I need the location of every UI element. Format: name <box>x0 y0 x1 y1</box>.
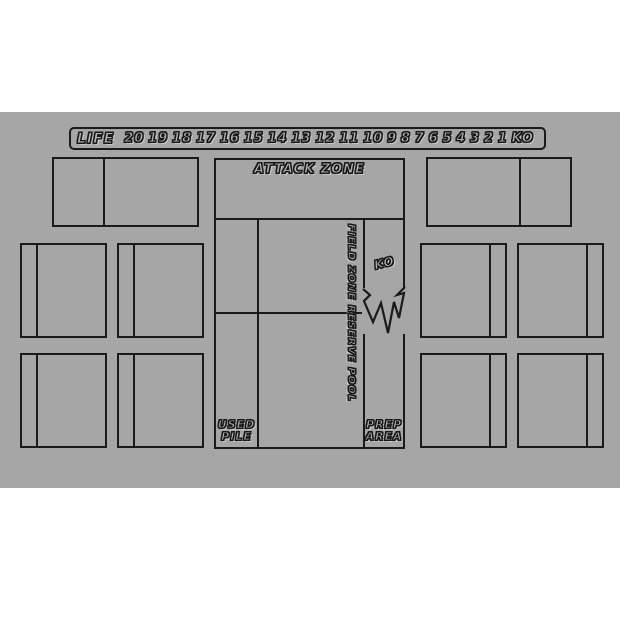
card-zone-right-4 <box>517 353 604 448</box>
playmat-surface: LIFE 2019181716151413121110987654321KO <box>0 112 620 488</box>
zone-divider <box>489 355 491 446</box>
ko-label: KO <box>372 254 396 273</box>
life-value: 4 <box>456 132 466 145</box>
life-value: 1 <box>498 132 508 145</box>
life-value: 18 <box>172 132 192 145</box>
life-value: 16 <box>220 132 240 145</box>
zone-divider <box>133 245 135 336</box>
life-value: 6 <box>429 132 439 145</box>
card-zone-top-left <box>52 157 199 227</box>
life-value: 15 <box>244 132 264 145</box>
life-value: 20 <box>124 132 144 145</box>
card-zone-left-4 <box>117 353 204 448</box>
life-value: 17 <box>196 132 216 145</box>
burst-crack-icon <box>357 285 406 337</box>
life-value: 12 <box>315 132 335 145</box>
zone-divider <box>36 245 38 336</box>
life-values: 2019181716151413121110987654321KO <box>124 132 534 145</box>
card-zone-left-2 <box>117 243 204 338</box>
life-counter-track: LIFE 2019181716151413121110987654321KO <box>69 127 546 150</box>
zone-divider <box>586 245 588 336</box>
playmat-image: LIFE 2019181716151413121110987654321KO <box>0 0 620 620</box>
life-value: 19 <box>148 132 168 145</box>
zone-divider <box>103 159 105 225</box>
card-zone-right-2 <box>517 243 604 338</box>
ko-zone: KO <box>365 252 403 274</box>
life-value: 14 <box>268 132 288 145</box>
card-zone-right-1 <box>420 243 507 338</box>
zone-divider <box>133 355 135 446</box>
life-value: 13 <box>292 132 312 145</box>
life-value: 9 <box>387 132 397 145</box>
used-pile-label: USED PILE <box>216 419 257 443</box>
life-value: 10 <box>363 132 383 145</box>
card-zone-top-right <box>426 157 572 227</box>
card-zone-right-3 <box>420 353 507 448</box>
zone-divider <box>519 159 521 225</box>
life-value: 7 <box>415 132 425 145</box>
card-zone-left-1 <box>20 243 107 338</box>
card-zone-left-3 <box>20 353 107 448</box>
life-value: 5 <box>442 132 452 145</box>
field-reserve-divider <box>216 312 365 314</box>
life-label: LIFE <box>77 131 114 147</box>
central-play-area: ATTACK ZONE FIELD ZONE RESERVE POOL KO U… <box>214 158 405 449</box>
life-value: KO <box>512 132 534 145</box>
zone-divider <box>489 245 491 336</box>
attack-zone-divider <box>216 218 403 220</box>
used-pile-column-line <box>257 218 259 447</box>
life-value: 8 <box>401 132 411 145</box>
prep-area-label: PREP AREA <box>365 419 403 443</box>
life-value: 2 <box>484 132 494 145</box>
life-value: 11 <box>339 132 359 145</box>
zone-divider <box>586 355 588 446</box>
life-value: 3 <box>470 132 480 145</box>
zone-divider <box>36 355 38 446</box>
attack-zone-label: ATTACK ZONE <box>216 162 403 177</box>
